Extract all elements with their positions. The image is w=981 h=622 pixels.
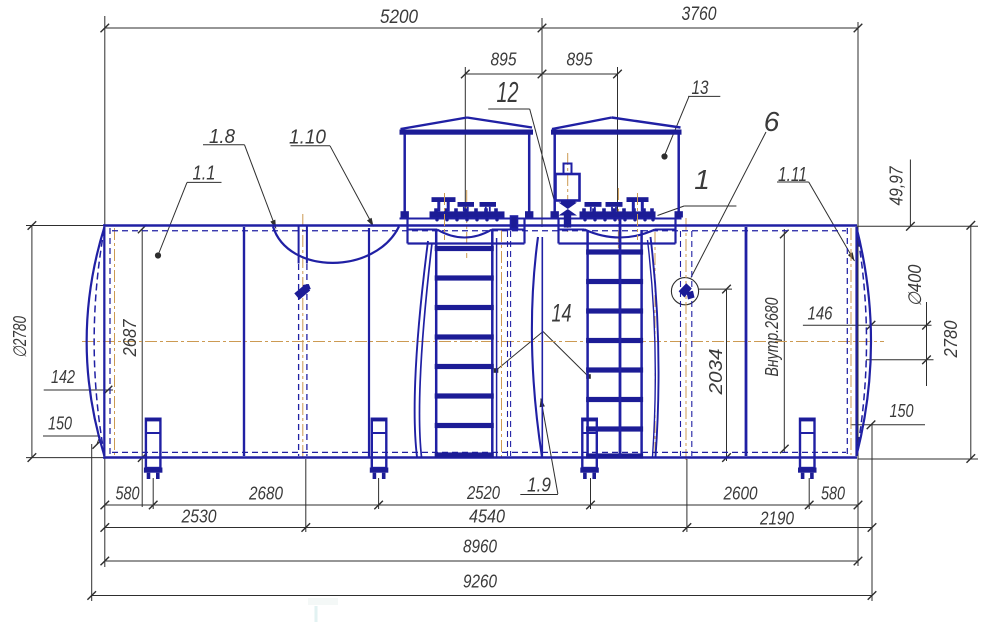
svg-text:146: 146 <box>808 303 834 324</box>
svg-text:1.11: 1.11 <box>778 163 807 186</box>
svg-text:1.10: 1.10 <box>289 125 327 148</box>
svg-text:1: 1 <box>694 164 710 195</box>
svg-text:4540: 4540 <box>469 506 506 527</box>
svg-text:2034: 2034 <box>706 349 726 396</box>
svg-text:49,97: 49,97 <box>887 166 907 206</box>
svg-text:1.1: 1.1 <box>193 162 216 185</box>
svg-text:2780: 2780 <box>941 321 961 359</box>
svg-text:142: 142 <box>51 366 76 387</box>
svg-text:5200: 5200 <box>380 6 418 28</box>
svg-text:13: 13 <box>692 77 709 99</box>
svg-text:2190: 2190 <box>759 508 794 529</box>
svg-text:∅400: ∅400 <box>905 265 925 307</box>
svg-text:6: 6 <box>764 106 780 137</box>
svg-text:895: 895 <box>491 49 518 70</box>
svg-text:1.8: 1.8 <box>209 125 236 148</box>
svg-text:1.9: 1.9 <box>527 474 551 497</box>
svg-text:2600: 2600 <box>723 483 758 504</box>
svg-text:150: 150 <box>890 400 915 421</box>
svg-text:580: 580 <box>821 483 846 504</box>
svg-text:2530: 2530 <box>181 506 217 527</box>
svg-text:12: 12 <box>497 77 519 109</box>
svg-text:580: 580 <box>116 483 141 504</box>
svg-text:150: 150 <box>48 413 73 434</box>
svg-text:895: 895 <box>567 49 594 70</box>
svg-text:∅2780: ∅2780 <box>10 316 30 358</box>
svg-text:Внутр.2680: Внутр.2680 <box>762 298 782 377</box>
svg-text:2680: 2680 <box>248 483 283 504</box>
svg-text:3760: 3760 <box>682 3 717 25</box>
svg-text:14: 14 <box>552 300 572 328</box>
svg-text:2687: 2687 <box>120 319 140 358</box>
svg-text:8960: 8960 <box>463 536 498 557</box>
svg-text:9260: 9260 <box>463 571 498 592</box>
svg-text:2520: 2520 <box>466 482 500 503</box>
